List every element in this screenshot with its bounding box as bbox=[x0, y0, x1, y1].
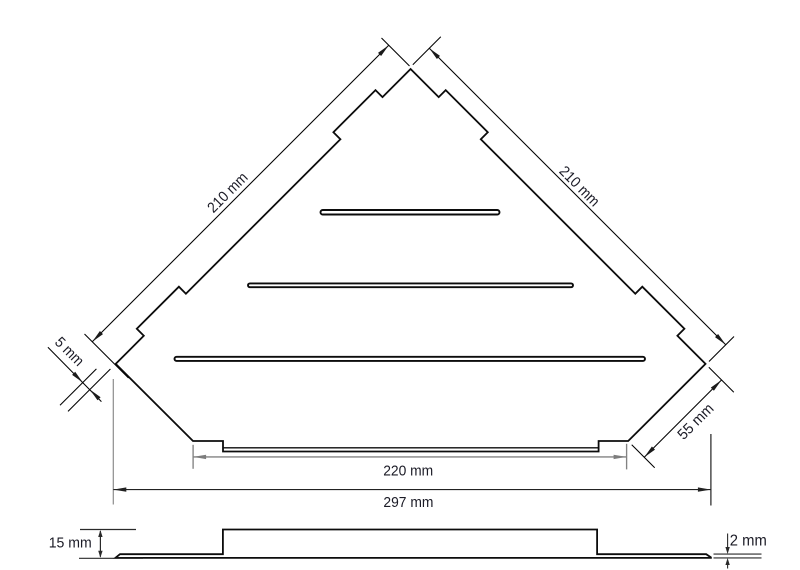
svg-text:210 mm: 210 mm bbox=[204, 169, 251, 216]
svg-text:297 mm: 297 mm bbox=[383, 494, 433, 511]
svg-text:5 mm: 5 mm bbox=[51, 334, 87, 370]
svg-text:220 mm: 220 mm bbox=[383, 463, 433, 480]
svg-text:15 mm: 15 mm bbox=[49, 535, 92, 552]
svg-text:210 mm: 210 mm bbox=[555, 163, 602, 210]
svg-text:2 mm: 2 mm bbox=[730, 532, 767, 549]
